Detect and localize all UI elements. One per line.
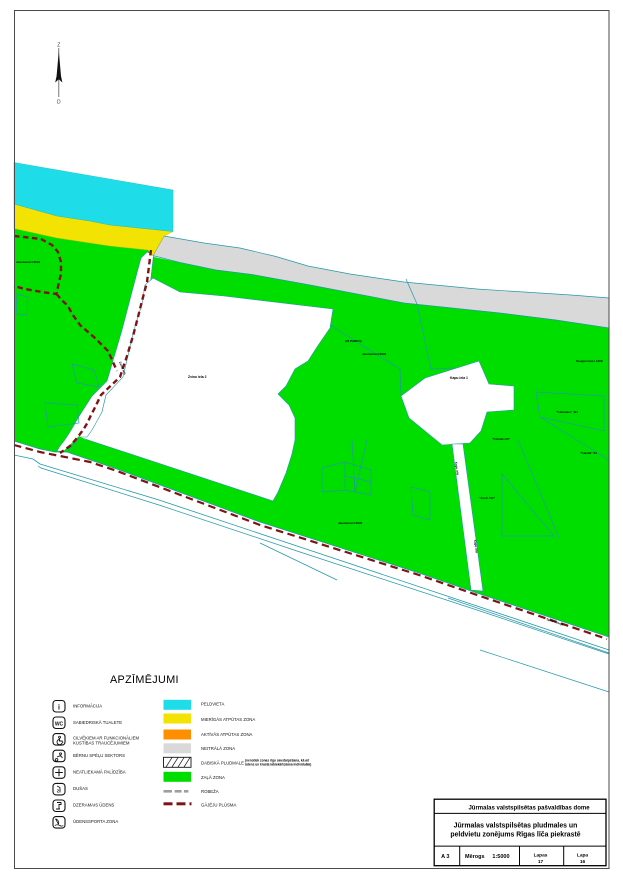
svg-text:BĒRNU SPĒĻU SEKTORS: BĒRNU SPĒĻU SEKTORS <box>73 753 125 758</box>
svg-text:ZAĻĀ ZONA: ZAĻĀ ZONA <box>201 775 225 780</box>
svg-text:Lapa: Lapa <box>577 852 589 858</box>
svg-text:Jūrmalas valstspilsētas pludma: Jūrmalas valstspilsētas pludmales un <box>454 822 578 829</box>
svg-text:ūdens un krasta labiekārtošana: ūdens un krasta labiekārtošana individuā… <box>245 763 311 767</box>
svg-text:1:5000: 1:5000 <box>492 854 509 860</box>
svg-text:DUŠAS: DUŠAS <box>73 786 88 791</box>
svg-text:APZĪMĒJUMI: APZĪMĒJUMI <box>110 674 179 686</box>
svg-text:DZERAMAIS ŪDENS: DZERAMAIS ŪDENS <box>73 803 114 808</box>
svg-text:KUSTĪBAS TRAUCĒJUMIEM: KUSTĪBAS TRAUCĒJUMIEM <box>73 741 130 746</box>
svg-text:D: D <box>57 100 61 106</box>
svg-text:NEITRĀLĀ ZONA: NEITRĀLĀ ZONA <box>201 746 235 751</box>
svg-text:16: 16 <box>580 859 586 865</box>
svg-text:Kapu iela 1: Kapu iela 1 <box>450 376 468 380</box>
svg-text:AKTĪVĀS ATPŪTAS ZONA: AKTĪVĀS ATPŪTAS ZONA <box>201 732 253 737</box>
svg-text:DABISKĀ PLUDMALE: DABISKĀ PLUDMALE <box>201 761 244 766</box>
svg-text:Zvinu iela 2: Zvinu iela 2 <box>188 375 207 379</box>
svg-text:peldvietu zonējums Rīgas līča: peldvietu zonējums Rīgas līča piekrastē <box>450 831 580 838</box>
svg-text:17: 17 <box>538 859 544 865</box>
svg-text:MIERĪGĀS ATPŪTAS ZONA: MIERĪGĀS ATPŪTAS ZONA <box>201 717 255 722</box>
svg-text:Z: Z <box>57 43 60 49</box>
svg-text:NEATLIEKAMĀ PALĪDZĪBA: NEATLIEKAMĀ PALĪDZĪBA <box>73 770 126 775</box>
svg-text:Jaunkemeri 6903: Jaunkemeri 6903 <box>338 521 363 525</box>
svg-text:"Celtnieks" 437: "Celtnieks" 437 <box>556 410 578 414</box>
svg-text:Jaunkemeri 6902: Jaunkemeri 6902 <box>362 352 387 356</box>
svg-text:ROBEŽA: ROBEŽA <box>201 789 219 794</box>
svg-text:GĀJĒJU PLŪSMA: GĀJĒJU PLŪSMA <box>201 803 236 808</box>
svg-text:INFORMĀCIJA: INFORMĀCIJA <box>73 704 102 709</box>
svg-text:Jūrmalas valstspilsētas pašval: Jūrmalas valstspilsētas pašvaldības dome <box>468 806 590 812</box>
svg-text:i: i <box>58 705 60 712</box>
svg-text:"Dzintari 23": "Dzintari 23" <box>492 437 511 441</box>
svg-text:PELDVIETA: PELDVIETA <box>201 702 224 707</box>
svg-text:"Avoti 102": "Avoti 102" <box>479 496 496 500</box>
svg-text:Lapas: Lapas <box>534 852 548 858</box>
svg-text:Mērogs: Mērogs <box>465 854 485 860</box>
svg-text:Kaugurciems 1308: Kaugurciems 1308 <box>576 359 603 363</box>
svg-text:"Calvini" 84: "Calvini" 84 <box>580 451 597 455</box>
svg-text:Jaunkemeri 6903: Jaunkemeri 6903 <box>16 260 41 264</box>
svg-text:ŪDENSSPORTA ZONA: ŪDENSSPORTA ZONA <box>73 819 118 824</box>
svg-text:WC: WC <box>55 722 64 728</box>
svg-text:A 3: A 3 <box>441 854 449 860</box>
svg-text:(24 PARKS): (24 PARKS) <box>345 339 361 343</box>
svg-text:SABIEDRISKĀ TUALETE: SABIEDRISKĀ TUALETE <box>73 720 122 725</box>
